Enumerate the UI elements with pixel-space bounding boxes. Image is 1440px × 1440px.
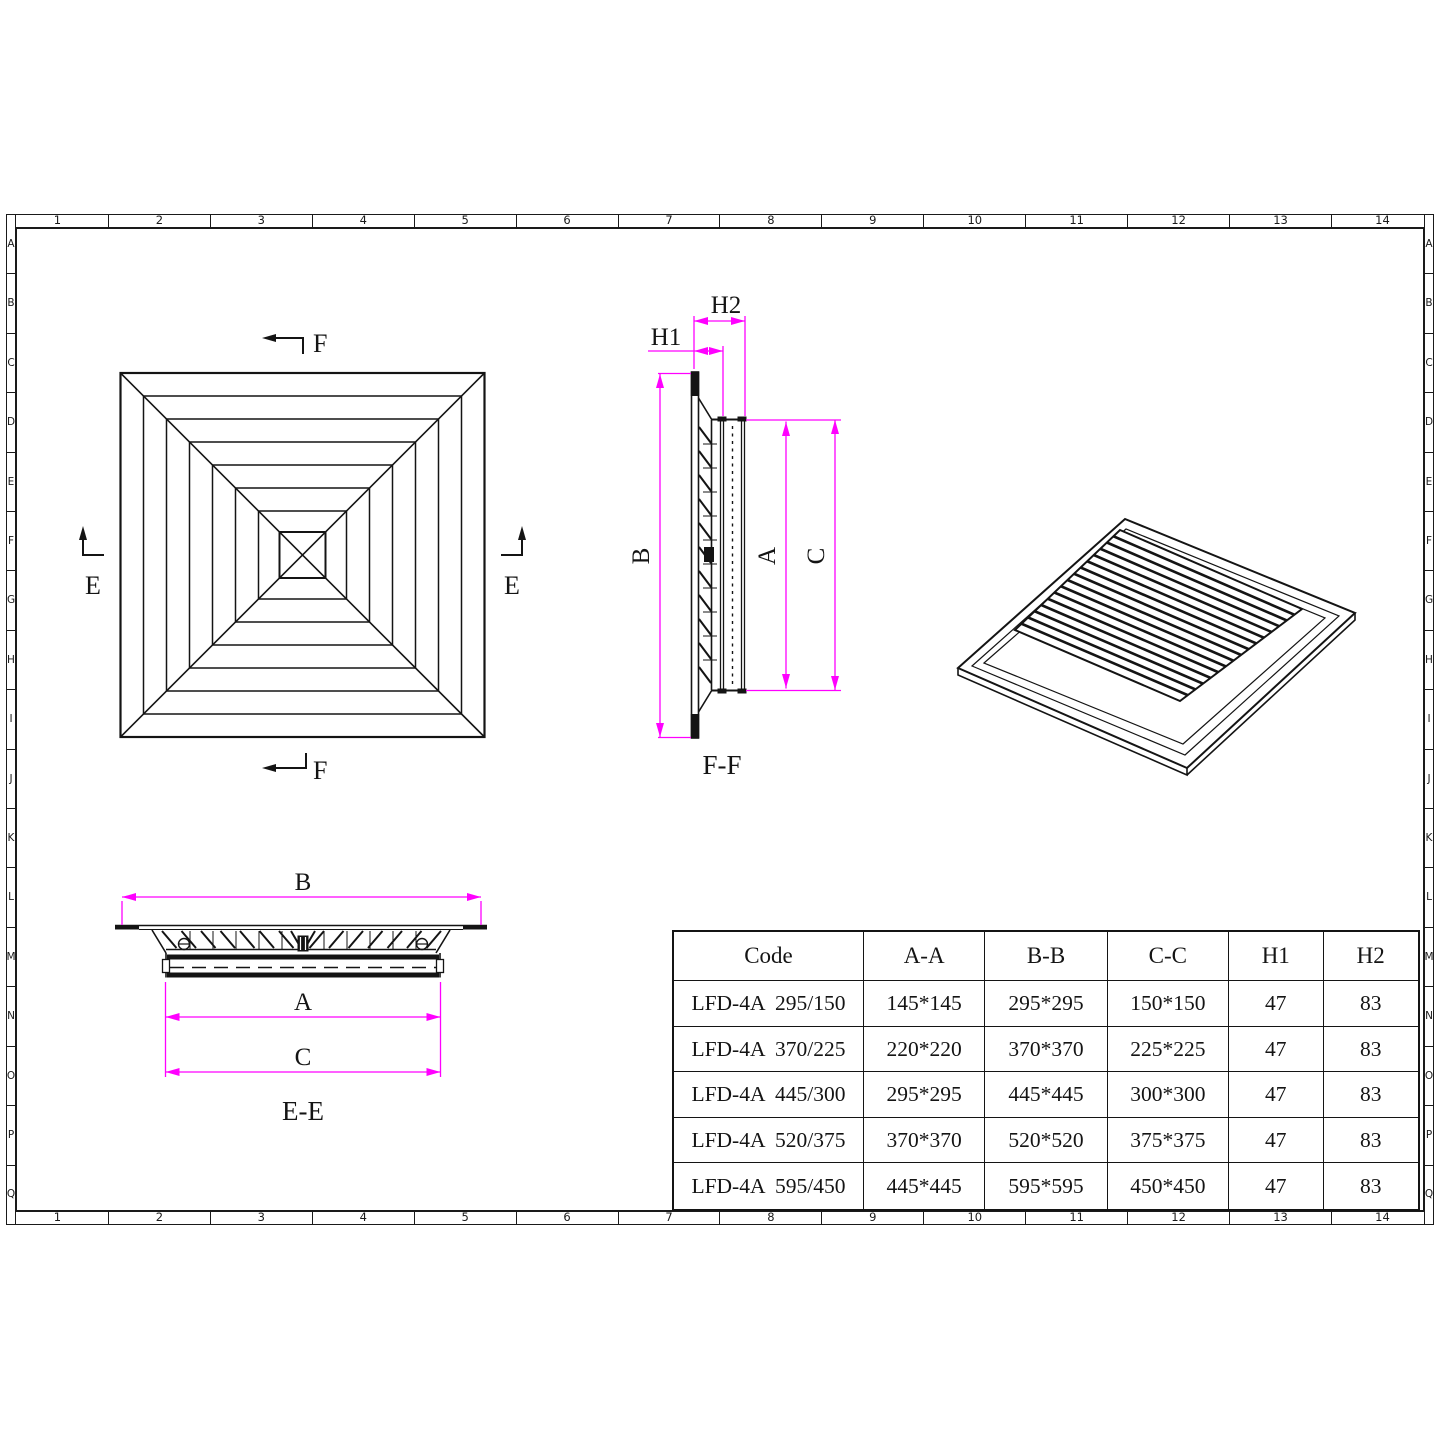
arrowhead xyxy=(262,764,276,772)
table-cell: 47 xyxy=(1229,1118,1323,1164)
grid-row-label: C xyxy=(7,334,15,393)
table-header-cell: H1 xyxy=(1229,932,1323,981)
grid-row-label: B xyxy=(1425,274,1433,333)
grid-col-label: 8 xyxy=(720,1212,822,1224)
grid-ruler-top: 1234567891011121314 xyxy=(6,214,1434,228)
grid-row-label: L xyxy=(7,868,15,927)
arrowhead xyxy=(656,374,664,388)
table-cell: 47 xyxy=(1229,1072,1323,1118)
grid-row-label: N xyxy=(1425,987,1433,1046)
arrowhead xyxy=(782,674,790,688)
grid-col-label: 7 xyxy=(619,215,721,227)
table-cell: 47 xyxy=(1229,1163,1323,1209)
table-cell: 47 xyxy=(1229,981,1323,1027)
table-cell: 220*220 xyxy=(864,1027,985,1073)
grid-row-label: C xyxy=(1425,334,1433,393)
grid-row-label: I xyxy=(1425,690,1433,749)
ff-plate-cap-bottom xyxy=(691,714,699,738)
grid-col-label: 13 xyxy=(1230,1212,1332,1224)
table-cell: 445*445 xyxy=(985,1072,1107,1118)
grid-row-label: H xyxy=(7,631,15,690)
ff-dim-label-h2: H2 xyxy=(711,292,742,319)
grid-row-label: F xyxy=(1425,512,1433,571)
grid-col-label: 14 xyxy=(1332,1212,1433,1224)
arrowhead xyxy=(694,317,708,325)
grid-col-label: 5 xyxy=(415,215,517,227)
grid-col-label: 9 xyxy=(822,1212,924,1224)
table-cell: 295*295 xyxy=(985,981,1107,1027)
table-header-cell: B-B xyxy=(985,932,1107,981)
grid-col-label: 12 xyxy=(1128,215,1230,227)
grid-row-label: H xyxy=(1425,631,1433,690)
ff-dim-label-c: C xyxy=(803,548,830,565)
marker-arrowheads xyxy=(79,334,526,772)
arrowhead xyxy=(782,422,790,436)
ee-neck-endcap xyxy=(163,960,170,973)
arrowhead xyxy=(166,1013,180,1021)
ee-dim-label-a: A xyxy=(294,989,312,1016)
ff-neck-cap xyxy=(718,689,727,694)
grid-row-label: O xyxy=(1425,1047,1433,1106)
grid-col-label: 2 xyxy=(109,1212,211,1224)
table-header-cell: A-A xyxy=(864,932,985,981)
ee-flange-stub xyxy=(463,925,487,930)
table-cell: 225*225 xyxy=(1108,1027,1229,1073)
grid-col-label: 6 xyxy=(517,215,619,227)
arrowhead xyxy=(467,893,481,901)
arrowhead xyxy=(79,526,87,540)
grid-ruler-right: ABCDEFGHIJKLMNOPQ xyxy=(1424,214,1434,1225)
arrowhead xyxy=(518,526,526,540)
table-cell: LFD-4A 595/450 xyxy=(674,1163,864,1209)
table-cell: LFD-4A 520/375 xyxy=(674,1118,864,1164)
marker-label-f-top: F xyxy=(313,329,327,358)
arrowhead xyxy=(427,1068,441,1076)
grid-col-label: 2 xyxy=(109,215,211,227)
table-cell: 300*300 xyxy=(1108,1072,1229,1118)
ee-flange-stub xyxy=(115,925,139,930)
plan-view xyxy=(83,338,522,768)
grid-row-label: J xyxy=(1425,750,1433,809)
table-cell: 83 xyxy=(1324,1072,1418,1118)
ff-neck-cap xyxy=(738,417,747,422)
grid-col-label: 7 xyxy=(619,1212,721,1224)
section-marker-e-right xyxy=(501,532,522,555)
iso-view xyxy=(958,519,1355,775)
arrowhead xyxy=(709,347,723,355)
grid-row-label: P xyxy=(1425,1106,1433,1165)
grid-row-label: A xyxy=(7,215,15,274)
grid-row-label: F xyxy=(7,512,15,571)
grid-row-label: B xyxy=(7,274,15,333)
grid-col-label: 12 xyxy=(1128,1212,1230,1224)
table-cell: 83 xyxy=(1324,981,1418,1027)
ee-neck-bar xyxy=(167,973,439,978)
drawing-sheet: F F E E xyxy=(0,0,1440,1440)
grid-col-label: 9 xyxy=(822,215,924,227)
section-ee-view xyxy=(115,925,487,978)
arrowhead xyxy=(262,334,276,342)
table-cell: 445*445 xyxy=(864,1163,985,1209)
grid-col-label: 14 xyxy=(1332,215,1433,227)
table-cell: 83 xyxy=(1324,1027,1418,1073)
ff-dim-label-b: B xyxy=(628,548,655,565)
table-header-cell: H2 xyxy=(1324,932,1418,981)
grid-row-label: D xyxy=(1425,393,1433,452)
marker-label-e-right: E xyxy=(504,571,520,600)
grid-row-label: G xyxy=(7,571,15,630)
grid-col-label: 1 xyxy=(7,215,109,227)
ff-face-plate xyxy=(692,372,699,738)
grid-col-label: 6 xyxy=(517,1212,619,1224)
ee-dim-label-c: C xyxy=(295,1044,312,1071)
grid-row-label: K xyxy=(7,809,15,868)
grid-col-label: 13 xyxy=(1230,215,1332,227)
grid-row-label: M xyxy=(1425,928,1433,987)
grid-row-label: D xyxy=(7,393,15,452)
grid-col-label: 10 xyxy=(924,1212,1026,1224)
ff-neck-cap xyxy=(718,417,727,422)
grid-col-label: 10 xyxy=(924,215,1026,227)
ff-center-hub xyxy=(704,547,714,562)
arrowhead xyxy=(831,676,839,690)
grid-col-label: 4 xyxy=(313,215,415,227)
spec-table: CodeA-AB-BC-CH1H2LFD-4A 295/150145*14529… xyxy=(672,930,1420,1211)
section-ff-view xyxy=(691,372,747,738)
table-cell: 83 xyxy=(1324,1163,1418,1209)
grid-row-label: O xyxy=(7,1047,15,1106)
grid-col-label: 3 xyxy=(211,1212,313,1224)
ff-cone-edge xyxy=(699,690,713,712)
table-cell: LFD-4A 295/150 xyxy=(674,981,864,1027)
table-cell: 295*295 xyxy=(864,1072,985,1118)
ee-neck-bar xyxy=(167,955,439,960)
table-cell: 150*150 xyxy=(1108,981,1229,1027)
grid-row-label: J xyxy=(7,750,15,809)
grid-ruler-bottom: 1234567891011121314 xyxy=(6,1211,1434,1225)
ff-view-title: F-F xyxy=(702,750,741,780)
table-cell: 47 xyxy=(1229,1027,1323,1073)
grid-row-label: N xyxy=(7,987,15,1046)
arrowhead xyxy=(831,420,839,434)
grid-row-label: Q xyxy=(1425,1166,1433,1224)
grid-row-label: Q xyxy=(7,1166,15,1224)
grid-col-label: 5 xyxy=(415,1212,517,1224)
table-cell: 520*520 xyxy=(985,1118,1107,1164)
ee-view-title: E-E xyxy=(282,1096,324,1126)
grid-col-label: 1 xyxy=(7,1212,109,1224)
grid-col-label: 4 xyxy=(313,1212,415,1224)
ff-neck-cap xyxy=(738,689,747,694)
grid-col-label: 8 xyxy=(720,215,822,227)
arrowhead xyxy=(166,1068,180,1076)
ee-center-hub xyxy=(298,936,309,952)
ff-dim-label-h1: H1 xyxy=(651,324,682,351)
table-cell: 595*595 xyxy=(985,1163,1107,1209)
arrowhead xyxy=(427,1013,441,1021)
grid-row-label: E xyxy=(7,453,15,512)
ff-cone-edge xyxy=(699,398,713,420)
table-header-cell: Code xyxy=(674,932,864,981)
arrowhead xyxy=(694,347,708,355)
grid-row-label: P xyxy=(7,1106,15,1165)
ee-dim-label-b: B xyxy=(295,869,312,896)
ff-plate-cap-top xyxy=(691,372,699,396)
table-cell: 370*370 xyxy=(985,1027,1107,1073)
marker-label-e-left: E xyxy=(85,571,101,600)
ff-dim-label-a: A xyxy=(754,547,781,565)
table-header-cell: C-C xyxy=(1108,932,1229,981)
ee-neck-endcap xyxy=(437,960,444,973)
grid-row-label: G xyxy=(1425,571,1433,630)
section-marker-e-left xyxy=(83,532,104,555)
grid-row-label: I xyxy=(7,690,15,749)
arrowhead xyxy=(122,893,136,901)
grid-row-label: K xyxy=(1425,809,1433,868)
table-cell: 370*370 xyxy=(864,1118,985,1164)
grid-row-label: E xyxy=(1425,453,1433,512)
table-cell: 83 xyxy=(1324,1118,1418,1164)
grid-row-label: M xyxy=(7,928,15,987)
grid-row-label: L xyxy=(1425,868,1433,927)
arrowhead xyxy=(656,723,664,737)
grid-row-label: A xyxy=(1425,215,1433,274)
table-cell: 375*375 xyxy=(1108,1118,1229,1164)
grid-col-label: 11 xyxy=(1026,1212,1128,1224)
table-cell: LFD-4A 445/300 xyxy=(674,1072,864,1118)
marker-label-f-bottom: F xyxy=(313,756,327,785)
grid-col-label: 3 xyxy=(211,215,313,227)
table-cell: 450*450 xyxy=(1108,1163,1229,1209)
grid-ruler-left: ABCDEFGHIJKLMNOPQ xyxy=(6,214,16,1225)
table-cell: 145*145 xyxy=(864,981,985,1027)
table-cell: LFD-4A 370/225 xyxy=(674,1027,864,1073)
grid-col-label: 11 xyxy=(1026,215,1128,227)
